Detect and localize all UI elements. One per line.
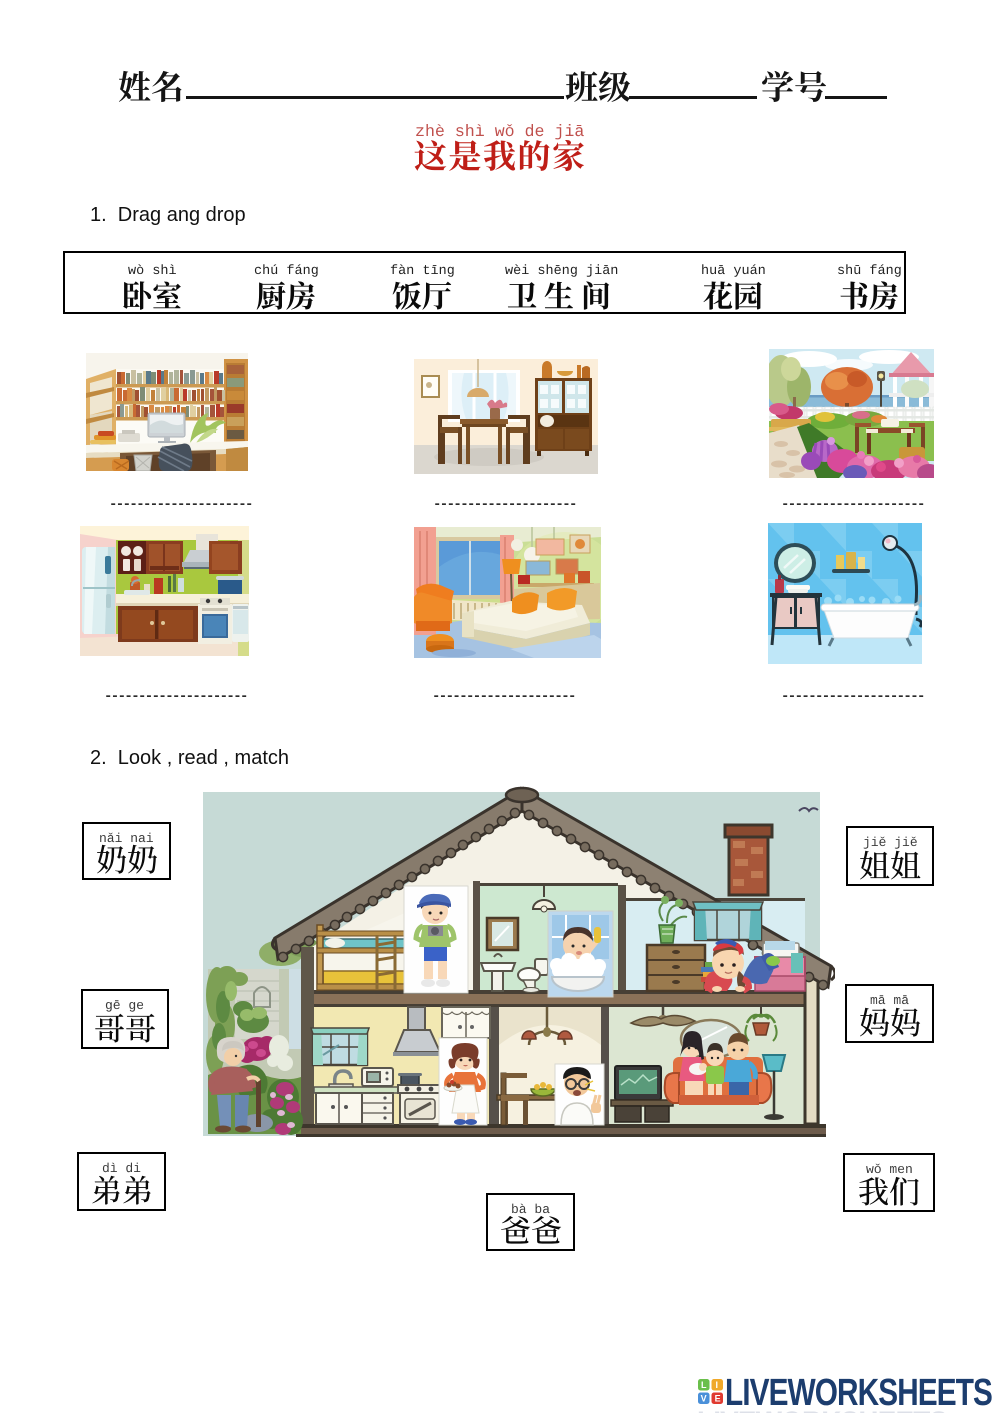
svg-text:E: E (715, 1394, 721, 1404)
svg-text:LIVEWORKSHEETS: LIVEWORKSHEETS (697, 1408, 947, 1413)
svg-text:V: V (701, 1394, 707, 1404)
svg-text:L: L (701, 1380, 707, 1390)
svg-text:I: I (716, 1380, 719, 1390)
